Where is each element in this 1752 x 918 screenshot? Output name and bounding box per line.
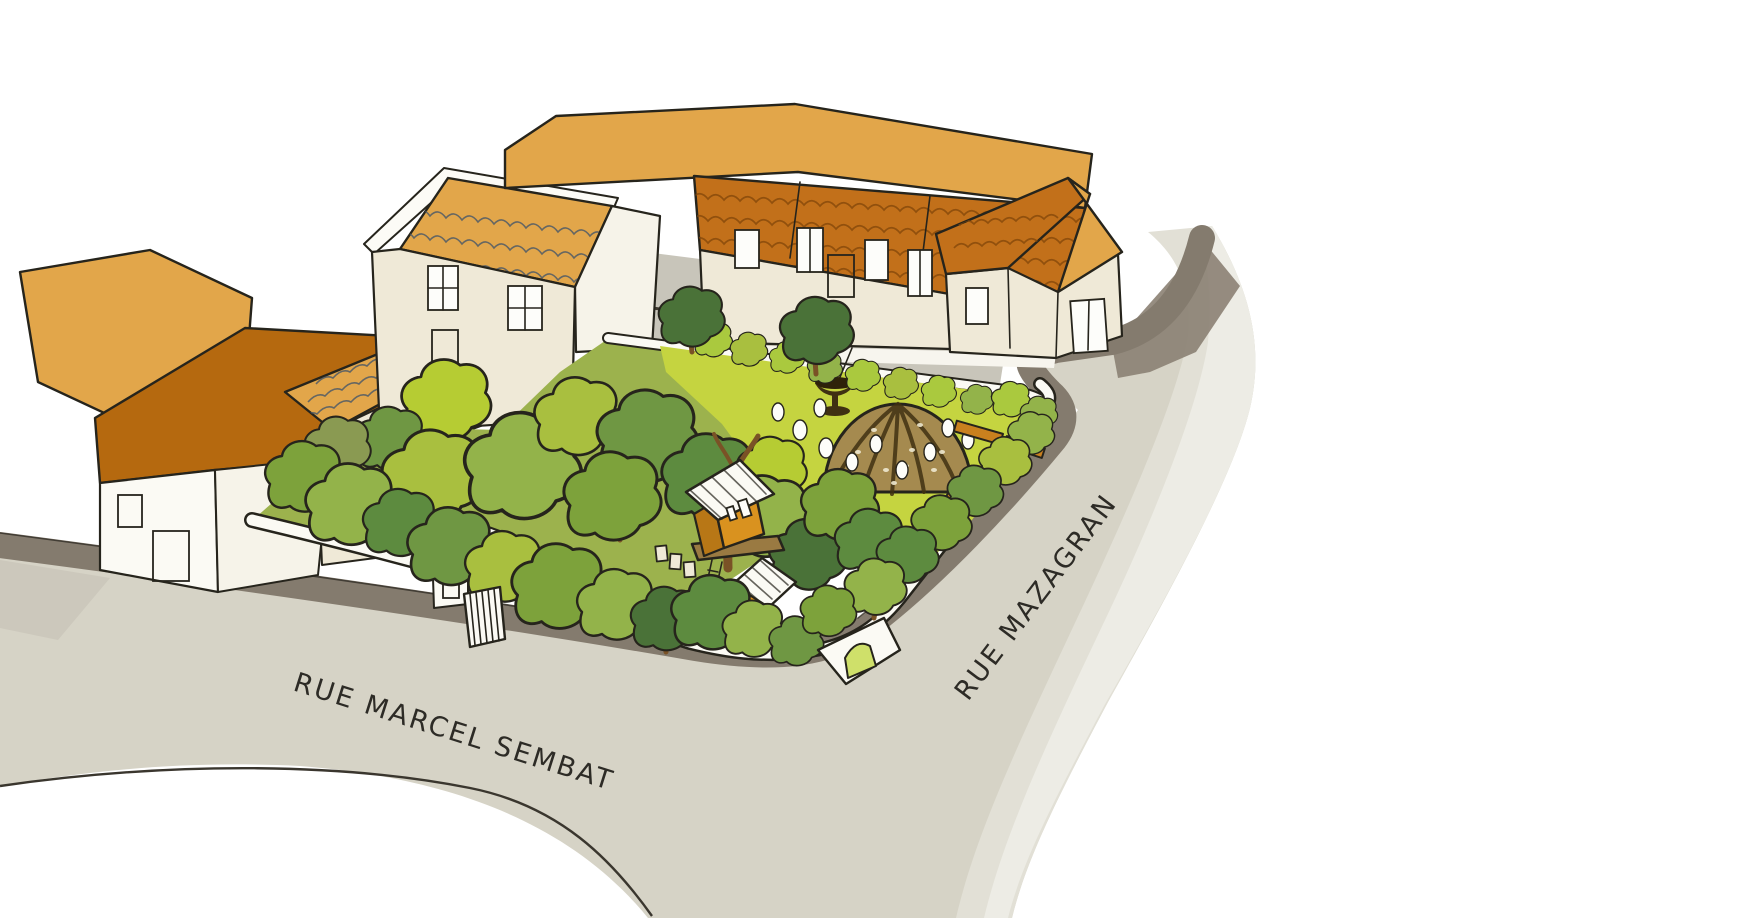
window [735, 230, 759, 268]
garden-gate [464, 587, 505, 647]
door-split [1088, 300, 1089, 350]
window [865, 240, 888, 280]
site-plan-illustration: RUE MARCEL SEMBAT RUE MAZAGRAN [0, 0, 1752, 918]
window [966, 288, 988, 324]
